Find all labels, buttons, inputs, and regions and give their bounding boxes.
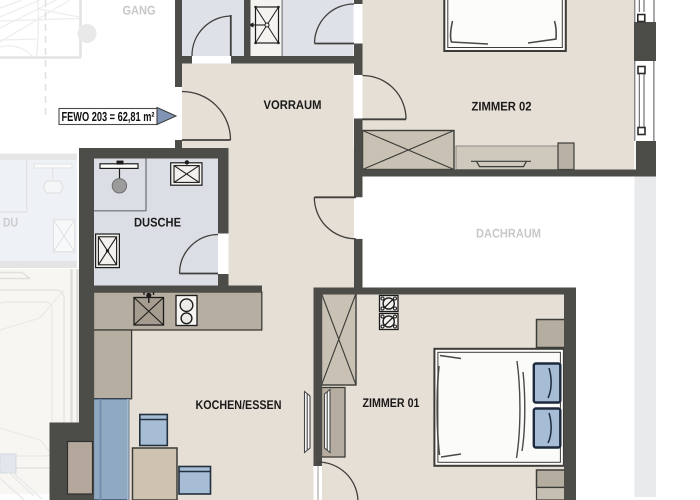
svg-text:ZIMMER 01: ZIMMER 01 [363,396,420,410]
svg-text:DU: DU [3,216,18,230]
svg-text:DACHRAUM: DACHRAUM [476,227,541,241]
svg-text:KOCHEN/ESSEN: KOCHEN/ESSEN [196,398,282,412]
svg-text:FEWO 203 = 62,81 m²: FEWO 203 = 62,81 m² [62,109,155,124]
svg-text:DUSCHE: DUSCHE [134,216,181,230]
svg-text:VORRAUM: VORRAUM [264,98,322,112]
svg-text:ZIMMER 02: ZIMMER 02 [472,100,532,114]
svg-text:GANG: GANG [123,4,156,18]
